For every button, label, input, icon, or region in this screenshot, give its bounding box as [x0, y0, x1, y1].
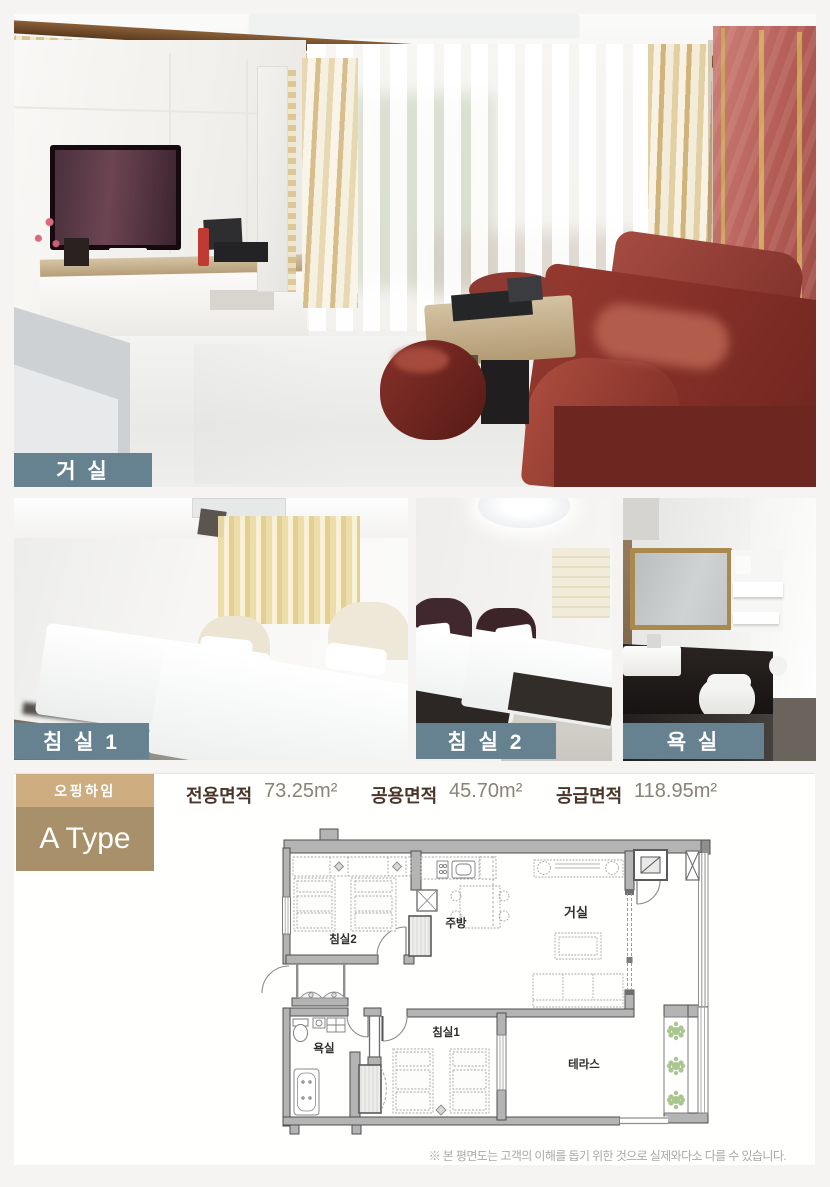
svg-text:테라스: 테라스 [568, 1057, 600, 1071]
svg-text:침실1: 침실1 [432, 1025, 460, 1039]
svg-text:욕실: 욕실 [313, 1041, 334, 1055]
svg-text:침실2: 침실2 [329, 932, 357, 946]
svg-text:거실: 거실 [564, 905, 588, 920]
svg-text:주방: 주방 [445, 916, 467, 930]
